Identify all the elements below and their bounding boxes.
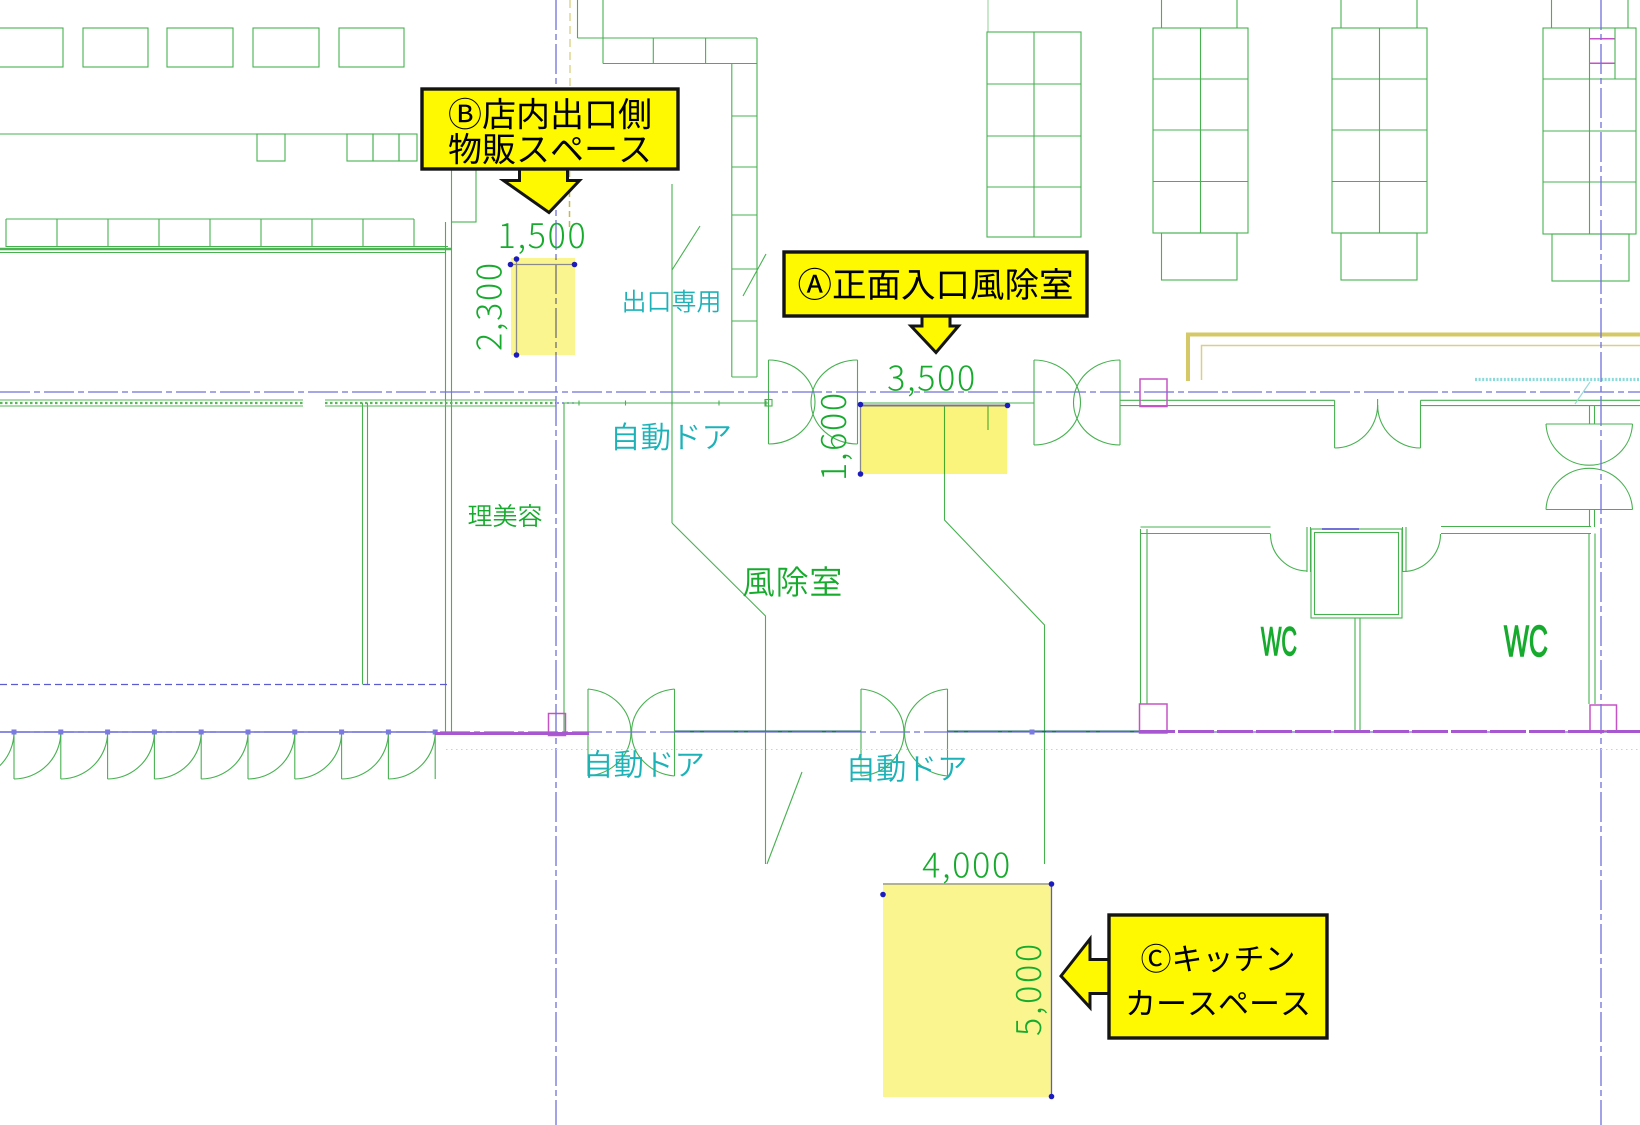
svg-text:WC: WC (1504, 617, 1548, 666)
svg-text:WC: WC (1261, 620, 1297, 664)
